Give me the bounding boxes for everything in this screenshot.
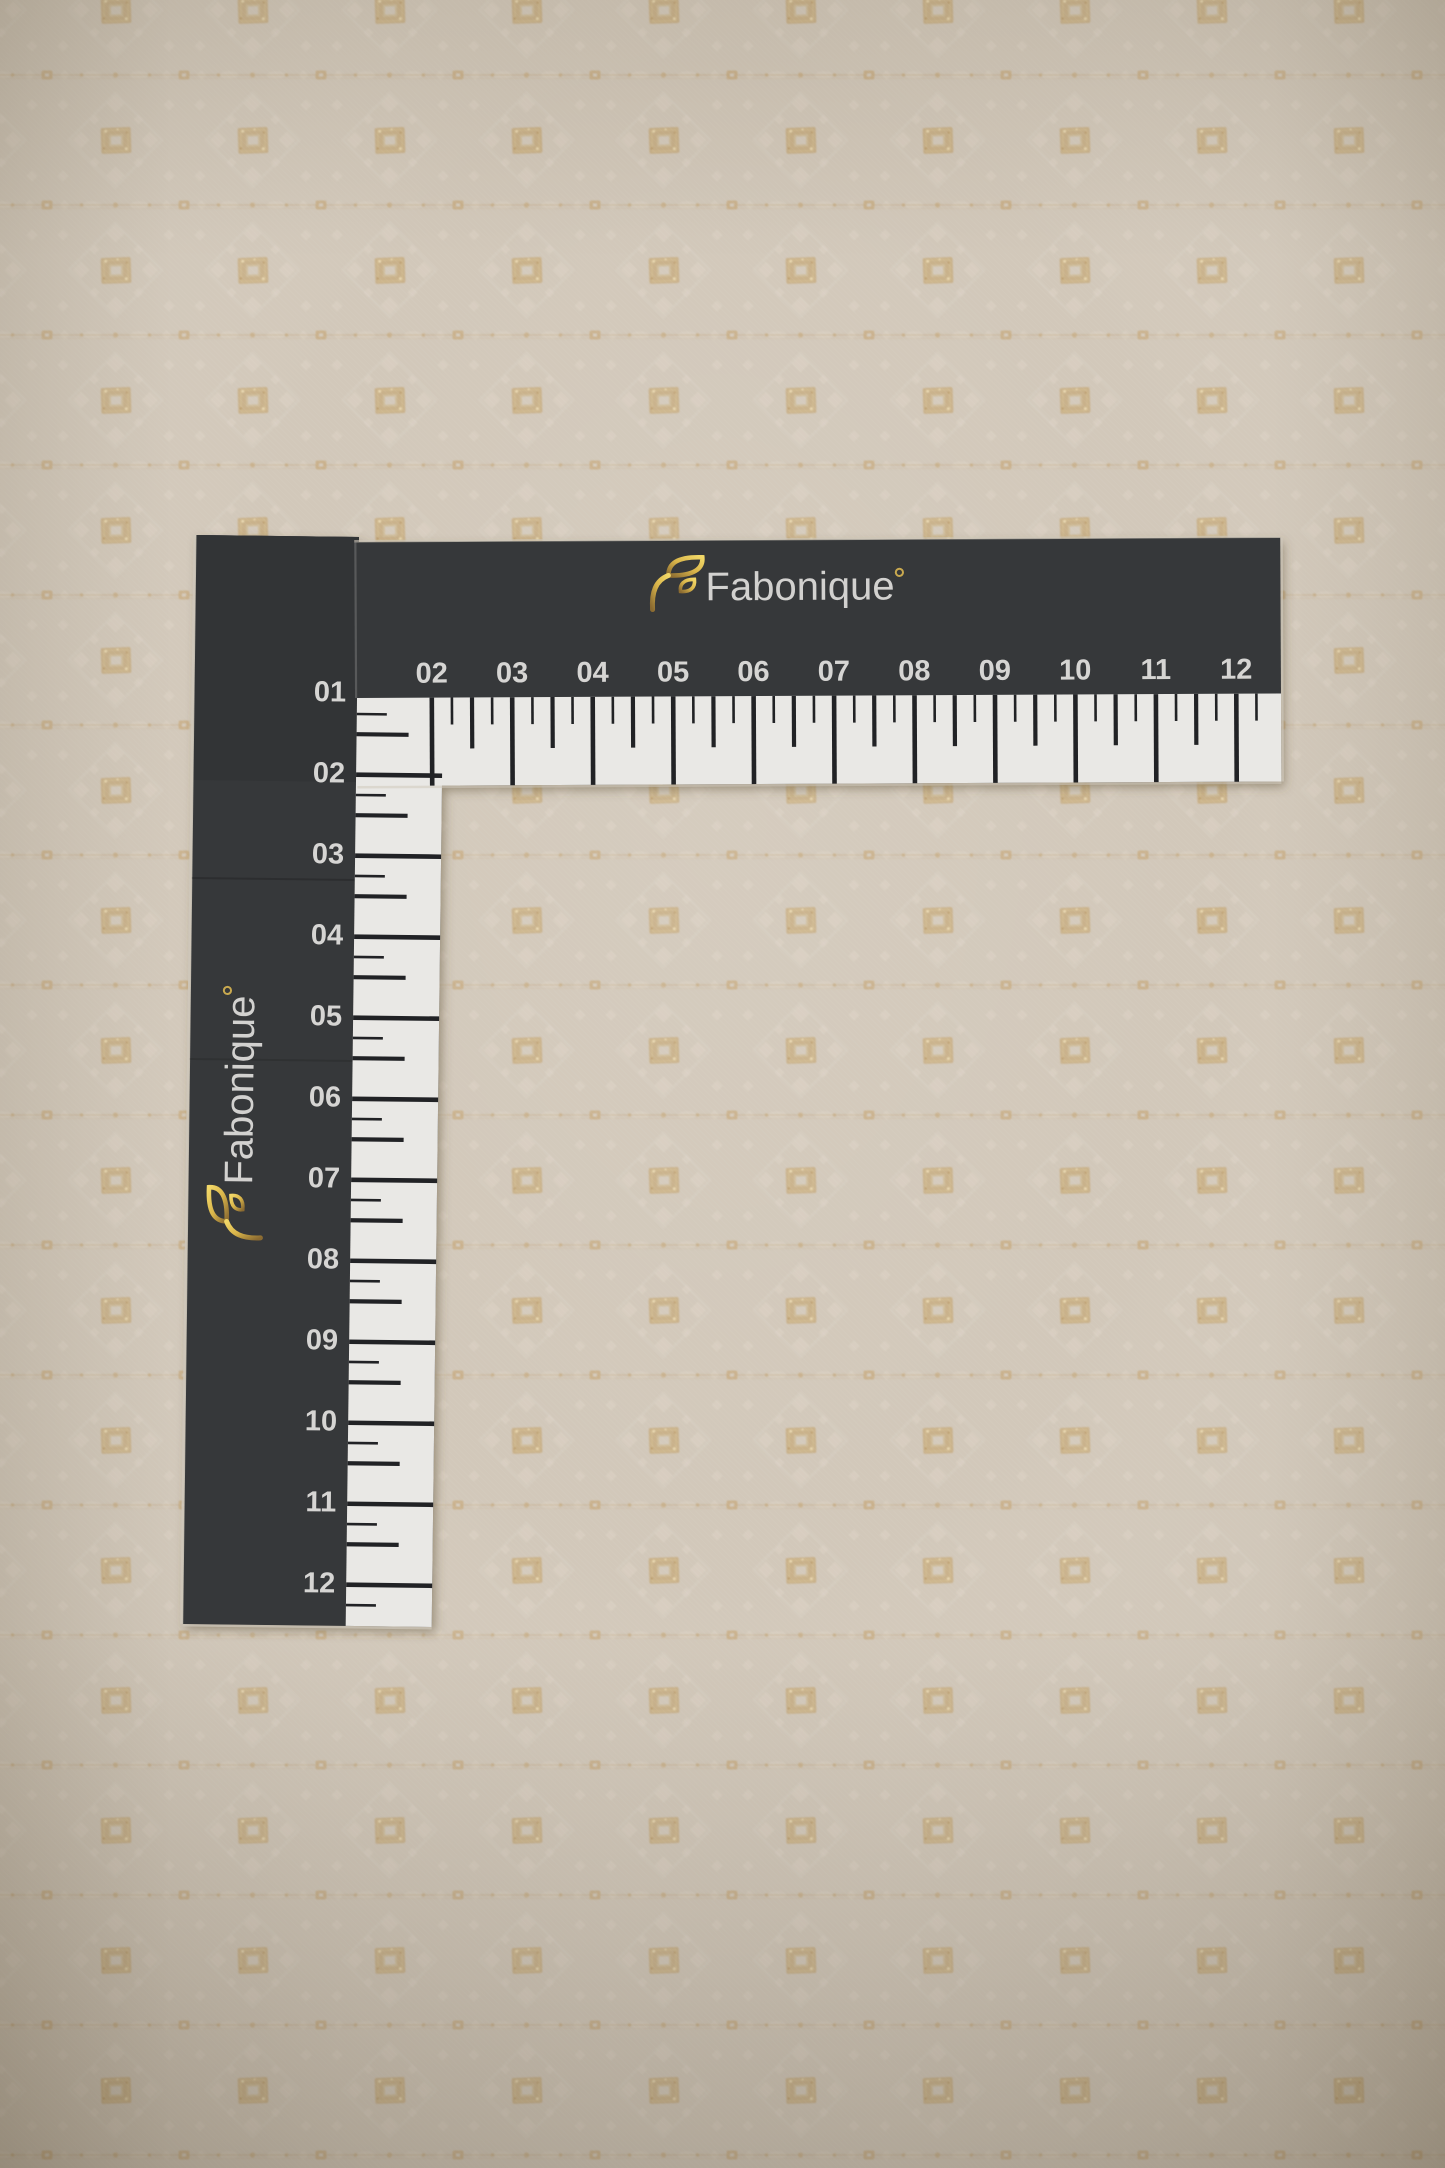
svg-text:09: 09 [306, 1324, 339, 1356]
svg-text:08: 08 [898, 655, 930, 687]
svg-text:05: 05 [310, 1000, 343, 1032]
svg-text:07: 07 [818, 656, 850, 688]
svg-text:12: 12 [1220, 654, 1252, 686]
svg-text:10: 10 [305, 1405, 338, 1437]
svg-text:05: 05 [657, 656, 689, 688]
svg-text:02: 02 [415, 658, 447, 690]
svg-text:04: 04 [576, 657, 608, 689]
svg-text:07: 07 [308, 1162, 341, 1194]
svg-text:03: 03 [312, 838, 345, 870]
svg-text:08: 08 [307, 1243, 340, 1275]
svg-text:10: 10 [1059, 654, 1091, 686]
svg-text:06: 06 [309, 1081, 342, 1113]
svg-text:11: 11 [1140, 654, 1171, 686]
svg-text:09: 09 [979, 655, 1011, 687]
svg-text:Fabonique: Fabonique [217, 995, 263, 1185]
svg-text:Fabonique: Fabonique [705, 564, 894, 609]
svg-text:12: 12 [303, 1567, 336, 1599]
svg-text:06: 06 [737, 656, 769, 688]
svg-text:02: 02 [313, 757, 346, 789]
svg-text:03: 03 [496, 657, 528, 689]
svg-text:11: 11 [305, 1486, 336, 1518]
svg-text:01: 01 [314, 676, 347, 708]
svg-text:04: 04 [311, 919, 344, 951]
